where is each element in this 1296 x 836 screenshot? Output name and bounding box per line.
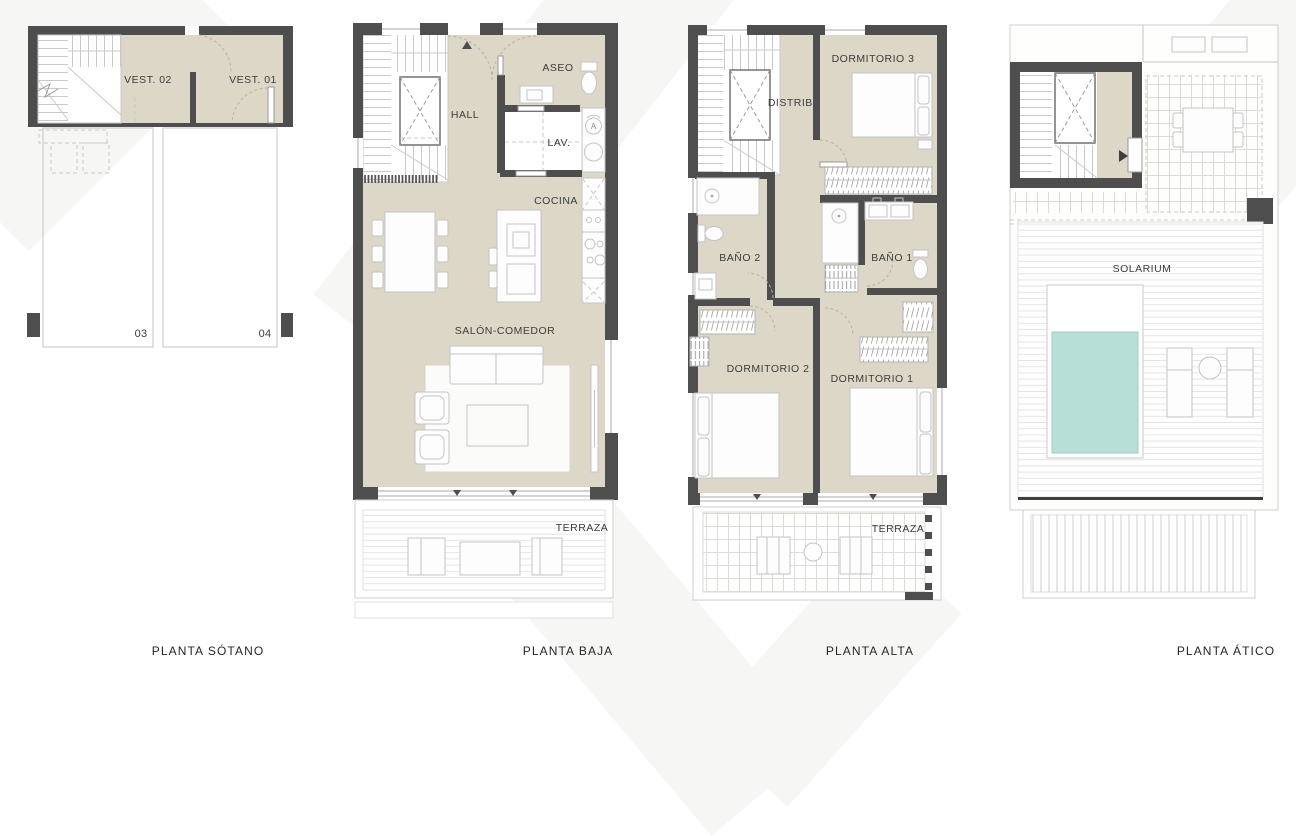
parking-number-04: 04 (259, 328, 272, 340)
room-label-bano2: BAÑO 2 (719, 251, 761, 264)
terrace: TERRAZA (355, 500, 613, 618)
room-label-dorm1: DORMITORIO 1 (831, 373, 914, 385)
sofa (450, 346, 543, 384)
plan-baja: ASEO A LAV. (350, 20, 625, 625)
parking-number-03: 03 (135, 328, 148, 340)
wardrobe (700, 310, 755, 334)
room-label-dorm2: DORMITORIO 2 (727, 363, 810, 375)
room-lav: A LAV. (497, 105, 605, 177)
plan-alta: DORMITORIO 3 DISTRIB. (685, 20, 950, 625)
plan-atico: SOLARIUM (1005, 20, 1285, 625)
wardrobe (825, 167, 932, 194)
linen-cabinet (825, 265, 858, 292)
pergola-slats (1023, 510, 1255, 598)
room-label-terraza: TERRAZA (872, 523, 925, 535)
floorplan-sheet: VEST. 02 VEST. 01 03 04 (0, 0, 1296, 663)
room-label-solarium: SOLARIUM (1113, 263, 1172, 275)
room-label-salon: SALÓN-COMEDOR (455, 324, 555, 337)
room-label-cocina: COCINA (534, 195, 578, 207)
side-table (1199, 357, 1221, 379)
chimney-block (1247, 198, 1273, 224)
plan-title-atico: PLANTA ÁTICO (1177, 644, 1275, 658)
stairwell (363, 34, 448, 183)
rooftop-unit (1212, 37, 1247, 52)
wardrobe (860, 337, 928, 362)
terrace-furniture (408, 538, 562, 575)
toilet (698, 225, 705, 242)
dining-set (372, 212, 448, 292)
room-label-hall: HALL (451, 109, 479, 121)
vestibule-divider-wall (190, 72, 196, 123)
room-label-distrib: DISTRIB. (768, 97, 816, 109)
stair-entry-grate (363, 175, 438, 183)
rooftop-unit (1172, 37, 1205, 52)
room-label-vest02: VEST. 02 (124, 74, 172, 86)
shower (697, 178, 759, 215)
terrace-table (804, 543, 822, 561)
washbasin (695, 273, 716, 299)
armchair (415, 392, 449, 424)
parking-space-03 (43, 128, 153, 347)
armchair (415, 430, 449, 464)
room-label-bano1: BAÑO 1 (871, 251, 913, 264)
garage-area: 03 04 (27, 128, 293, 347)
basement-vestibule-band: VEST. 02 VEST. 01 (28, 26, 293, 127)
door-leaf (820, 162, 847, 167)
sliding-door (378, 487, 590, 500)
pool (1047, 285, 1143, 458)
room-label-vest01: VEST. 01 (229, 74, 277, 86)
stairwell (38, 35, 121, 123)
outdoor-dining-set (1173, 108, 1243, 152)
room-label-dorm3: DORMITORIO 3 (832, 53, 915, 65)
terrace: TERRAZA (693, 507, 941, 600)
door-leaf (268, 87, 274, 123)
door-leaf (1128, 138, 1142, 172)
shower (822, 203, 858, 263)
room-label-aseo: ASEO (542, 62, 573, 74)
plan-title-baja: PLANTA BAJA (523, 644, 614, 658)
stair-void (730, 70, 770, 140)
washer-letter: A (591, 122, 597, 131)
stairwell (1010, 62, 1142, 188)
parking-space-04 (163, 128, 277, 347)
bed (695, 393, 779, 478)
plan-title-alta: PLANTA ALTA (826, 644, 914, 658)
wardrobe (690, 337, 709, 366)
stair-void (1055, 73, 1095, 143)
dining-table (385, 212, 435, 292)
pool-water (1052, 332, 1138, 453)
wardrobe (903, 302, 933, 332)
plan-sotano: VEST. 02 VEST. 01 03 04 (25, 25, 300, 360)
toilet (581, 62, 597, 71)
toilet (913, 250, 928, 257)
plan-title-sotano: PLANTA SÓTANO (152, 644, 265, 658)
media-unit (591, 365, 598, 472)
room-label-lav: LAV. (547, 137, 570, 149)
room-solarium: SOLARIUM (1018, 222, 1263, 500)
bed (850, 388, 933, 476)
room-label-terraza: TERRAZA (556, 522, 609, 534)
stair-void (400, 77, 440, 145)
kitchen-island (489, 210, 541, 302)
